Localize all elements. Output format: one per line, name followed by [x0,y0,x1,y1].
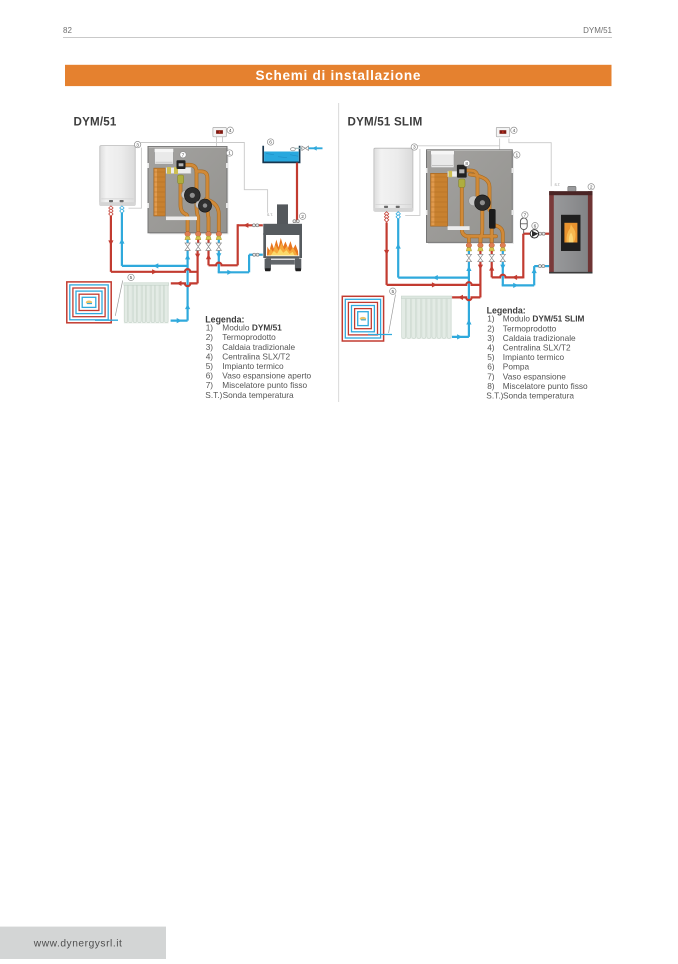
svg-text:Schemi di installazione: Schemi di installazione [255,68,421,83]
svg-text:6): 6) [206,371,214,381]
svg-text:8): 8) [487,381,495,391]
svg-text:Modulo DYM/51 SLIM: Modulo DYM/51 SLIM [503,314,585,324]
svg-text:1: 1 [515,153,518,159]
svg-text:Termoprodotto: Termoprodotto [222,332,276,342]
svg-text:4: 4 [229,128,232,134]
svg-text:S.T.): S.T.) [205,390,222,400]
svg-text:6: 6 [269,140,272,146]
svg-text:DYM/51: DYM/51 [74,116,117,129]
svg-text:1): 1) [206,323,214,333]
svg-text:1: 1 [228,151,231,157]
svg-text:2): 2) [487,323,495,333]
svg-text:7): 7) [487,371,495,381]
svg-text:Modulo DYM/51: Modulo DYM/51 [222,323,282,333]
svg-text:S.T.): S.T.) [486,391,503,401]
svg-text:3: 3 [136,142,139,148]
svg-text:5): 5) [487,352,495,362]
svg-text:Impianto termico: Impianto termico [222,361,284,371]
svg-text:82: 82 [63,26,72,35]
svg-text:Miscelatore punto fisso: Miscelatore punto fisso [503,381,588,391]
svg-text:8: 8 [465,161,468,167]
svg-text:Centralina SLX/T2: Centralina SLX/T2 [222,351,290,361]
svg-text:www.dynergysrl.it: www.dynergysrl.it [33,939,123,950]
svg-text:6: 6 [534,223,537,229]
svg-text:Sonda temperatura: Sonda temperatura [503,391,574,401]
svg-text:Sonda temperatura: Sonda temperatura [223,390,294,400]
svg-text:Impianto termico: Impianto termico [503,352,565,362]
svg-text:5): 5) [206,361,214,371]
svg-text:4): 4) [206,351,214,361]
svg-text:Termoprodotto: Termoprodotto [503,323,557,333]
svg-text:Pompa: Pompa [503,362,530,372]
svg-text:DYM/51 SLIM: DYM/51 SLIM [348,116,423,129]
svg-text:4): 4) [487,343,495,353]
svg-text:Vaso espansione aperto: Vaso espansione aperto [222,371,311,381]
svg-text:6): 6) [487,362,495,372]
svg-text:3): 3) [487,333,495,343]
svg-text:7: 7 [524,213,527,219]
svg-text:7: 7 [182,152,185,158]
svg-text:S.T.: S.T. [267,213,273,217]
svg-text:1): 1) [487,314,495,324]
svg-text:3: 3 [413,145,416,151]
svg-text:4: 4 [513,128,516,134]
svg-text:2): 2) [206,332,214,342]
svg-text:7): 7) [206,380,214,390]
svg-text:Centralina SLX/T2: Centralina SLX/T2 [503,343,571,353]
svg-text:5: 5 [130,275,133,281]
svg-text:Caldaia tradizionale: Caldaia tradizionale [222,342,295,352]
svg-text:2: 2 [590,185,593,191]
svg-text:Vaso espansione: Vaso espansione [503,371,566,381]
svg-text:3): 3) [206,342,214,352]
svg-text:Miscelatore punto fisso: Miscelatore punto fisso [222,380,307,390]
svg-text:Caldaia tradizionale: Caldaia tradizionale [503,333,576,343]
svg-text:2: 2 [301,214,304,220]
svg-text:DYM/51: DYM/51 [583,26,612,35]
svg-text:S.T.: S.T. [555,183,561,187]
svg-text:5: 5 [391,289,394,295]
